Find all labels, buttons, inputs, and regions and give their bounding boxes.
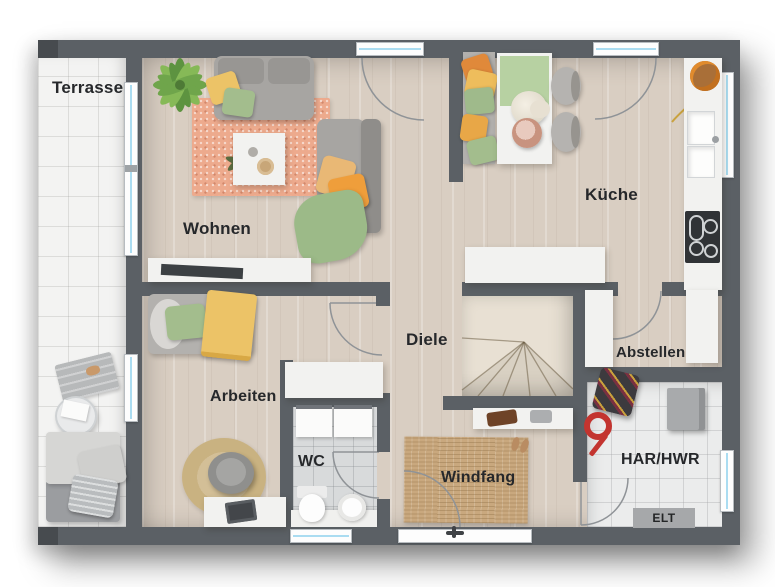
pillow [464,87,496,116]
room-label-terrasse: Terrasse [52,78,123,98]
washbasin-cabinet [334,405,372,437]
window [720,450,734,512]
interior-wall [377,499,390,527]
burner-icon [704,244,718,258]
interior-wall [376,282,390,306]
kitchen-peninsula [465,247,605,283]
office-chair-seat [216,458,246,486]
flower-bouquet [530,100,550,118]
room-label-windfang: Windfang [441,469,515,487]
entry-door [398,529,532,543]
toilet [299,494,325,522]
washing-machine [667,388,705,430]
pillow [221,87,255,118]
storage-cabinet [585,290,613,367]
interior-wall [573,367,726,382]
bidet [338,494,366,521]
exterior-wall-bottom [38,527,740,545]
storage-cabinet [686,290,718,363]
terrace-sliding-door [124,82,138,256]
burner-icon [689,241,704,256]
dining-chair [551,112,581,152]
room-label-diele: Diele [406,330,448,350]
vase [248,147,258,157]
stair-nook-floor [462,296,573,396]
coffee-table [233,133,285,185]
wc-window [290,529,352,543]
window [356,42,424,56]
room-label-wohnen: Wohnen [183,219,251,239]
room-label-arbeiten: Arbeiten [210,388,277,406]
interior-wall [377,393,390,452]
wall-corner [38,527,58,545]
room-label-har-hwr: HAR/HWR [621,451,700,469]
tray [257,158,274,175]
faucet-icon [712,136,719,143]
interior-wall [449,58,463,182]
laptop [225,499,258,524]
hall-wardrobe [285,362,383,398]
kitchen-sink [687,111,715,145]
blanket [201,290,258,362]
decor-items [530,410,552,423]
burner-icon [703,219,718,234]
washbasin-cabinet [296,405,332,437]
room-label-wc: WC [298,453,325,471]
door-handle-icon [452,526,456,538]
window [124,354,138,422]
elt-label: ELT [652,511,675,525]
electrical-panel: ELT [633,508,695,528]
pillow [164,303,207,341]
pillow [67,473,119,518]
plate [512,118,542,148]
room-label-abstellen: Abstellen [616,344,685,361]
floor-plan: ELT Terrasse Wohnen Küche Diele Arbeiten… [0,0,775,587]
room-label-kueche: Küche [585,185,638,205]
sofa-cushion [268,58,310,84]
dining-chair [551,67,581,105]
window [593,42,659,56]
fruit-bowl [690,61,720,91]
wall-corner [38,40,58,58]
window [720,72,734,178]
kitchen-sink [687,146,715,178]
burner-icon [689,215,704,241]
